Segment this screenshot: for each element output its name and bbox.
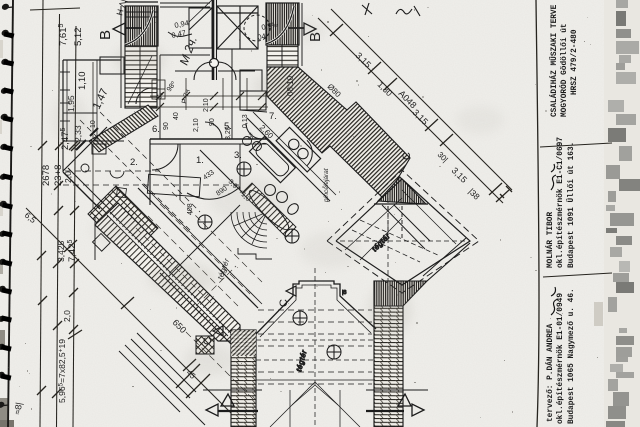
svg-text:Budapest 1065 Nagymező u. 46.: Budapest 1065 Nagymező u. 46. [568,288,576,424]
svg-text:7.: 7. [269,111,277,122]
svg-text:CSALÁDIHÁZ MŰSZAKI TERVE: CSALÁDIHÁZ MŰSZAKI TERVE [550,4,559,117]
svg-text:Budapest 1091 Üllői út 163.: Budapest 1091 Üllői út 163. [567,142,576,268]
svg-text:MOLNÁR TIBOR: MOLNÁR TIBOR [546,212,555,268]
svg-text:5,12: 5,12 [73,28,84,47]
svg-text:okl.építészmérnök E1-01/0949: okl.építészmérnök E1-01/0949 [557,293,565,424]
svg-text:3.: 3. [234,150,242,161]
svg-text:B: B [97,30,114,40]
svg-text:2678: 2678 [41,165,52,186]
svg-text:10: 10 [90,120,97,128]
svg-text:okl.építészmérnök E1-C1/0697: okl.építészmérnök E1-C1/0697 [557,137,565,268]
svg-text:píncélejárat: píncélejárat [323,167,330,203]
svg-text:≈8|: ≈8| [12,402,24,416]
svg-text:2,10: 2,10 [193,118,200,132]
svg-text:408: 408 [187,203,194,215]
svg-text:2.: 2. [130,157,138,168]
svg-text:HRSZ 479/2-480: HRSZ 479/2-480 [571,29,579,95]
svg-text:tervező: P.DÁN ANDREA: tervező: P.DÁN ANDREA [546,323,555,422]
svg-text:MOGYORÓD Gödöllői út: MOGYORÓD Gödöllői út [559,23,569,117]
svg-text:2,0: 2,0 [62,310,72,322]
svg-text:5,965=7x82,5+19: 5,965=7x82,5+19 [57,339,67,403]
svg-text:2,10: 2,10 [203,98,210,112]
svg-text:90: 90 [163,122,170,130]
svg-text:5+: 5+ [248,132,255,140]
svg-text:1.: 1. [196,155,204,166]
svg-text:C: C [202,337,214,345]
svg-text:40: 40 [173,112,180,120]
svg-text:90: 90 [209,118,216,126]
svg-text:3,20: 3,20 [225,126,232,140]
svg-text:C: C [401,152,413,160]
svg-text:6.: 6. [152,124,160,135]
svg-text:1,10: 1,10 [77,72,88,91]
svg-text:0,13: 0,13 [242,114,249,128]
svg-text:|8: |8 [342,290,347,296]
